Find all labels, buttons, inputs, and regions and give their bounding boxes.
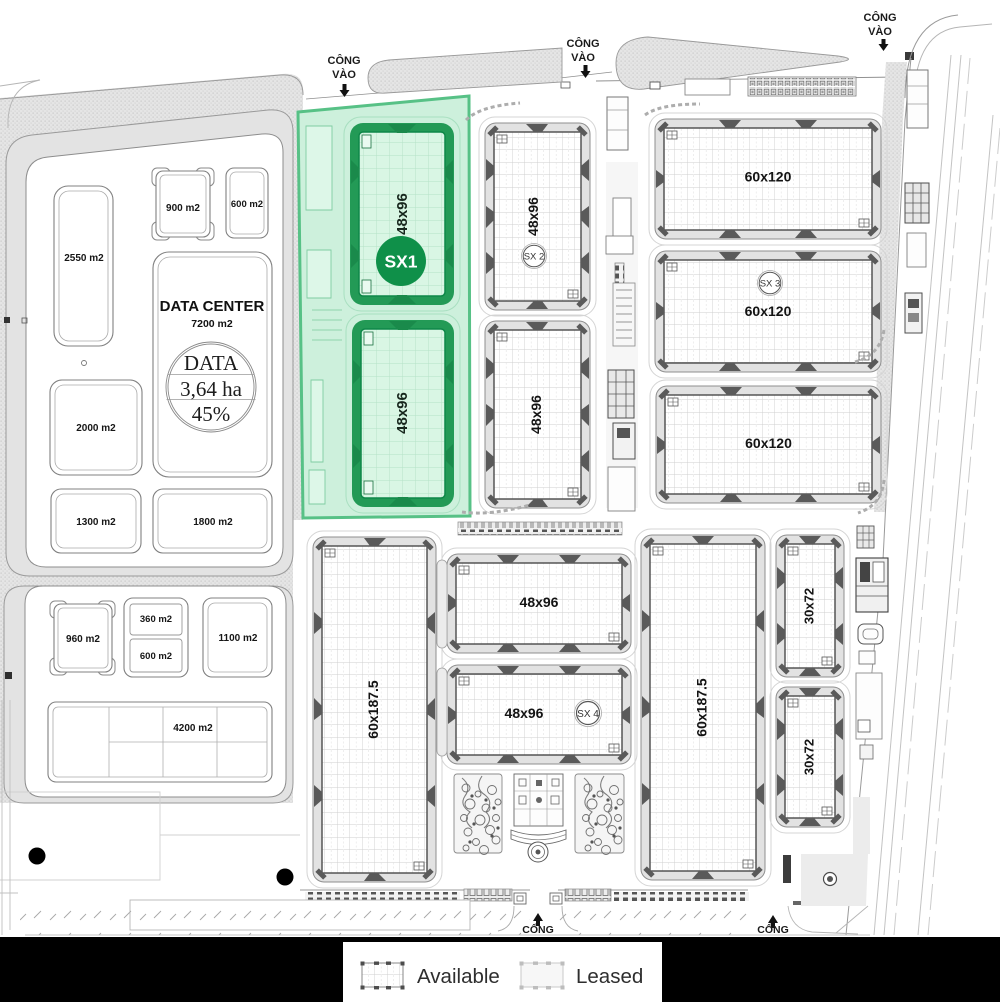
- svg-text:45%: 45%: [192, 402, 231, 426]
- svg-text:SX 4: SX 4: [577, 709, 599, 720]
- svg-text:2550 m2: 2550 m2: [64, 253, 104, 264]
- svg-text:CỔNG: CỔNG: [757, 923, 789, 936]
- svg-text:1100 m2: 1100 m2: [219, 633, 258, 644]
- svg-text:7200 m2: 7200 m2: [191, 318, 233, 330]
- svg-text:48x96: 48x96: [505, 705, 544, 721]
- svg-text:Leased: Leased: [576, 965, 643, 988]
- svg-text:CÔNG: CÔNG: [328, 54, 361, 67]
- svg-text:30x72: 30x72: [801, 739, 816, 775]
- svg-text:CÔNG: CÔNG: [864, 11, 897, 24]
- svg-text:DATA: DATA: [184, 351, 239, 375]
- svg-text:DATA CENTER: DATA CENTER: [160, 298, 265, 315]
- svg-text:2000 m2: 2000 m2: [76, 423, 116, 434]
- svg-text:1300 m2: 1300 m2: [76, 517, 116, 528]
- svg-text:360 m2: 360 m2: [140, 614, 172, 625]
- svg-text:60x120: 60x120: [745, 169, 792, 185]
- svg-text:VÀO: VÀO: [571, 51, 595, 64]
- svg-text:600 m2: 600 m2: [140, 651, 172, 662]
- svg-text:48x96: 48x96: [520, 594, 559, 610]
- svg-text:3,64 ha: 3,64 ha: [180, 377, 243, 401]
- svg-text:30x72: 30x72: [801, 588, 816, 624]
- svg-text:1800 m2: 1800 m2: [193, 517, 233, 528]
- svg-text:VÀO: VÀO: [332, 68, 356, 81]
- svg-text:60x187.5: 60x187.5: [365, 680, 381, 739]
- svg-text:60x187.5: 60x187.5: [694, 678, 710, 737]
- svg-text:VÀO: VÀO: [868, 25, 892, 38]
- svg-text:900 m2: 900 m2: [166, 203, 200, 214]
- svg-text:60x120: 60x120: [745, 435, 792, 451]
- svg-text:Available: Available: [417, 965, 500, 988]
- svg-text:CỔNG: CỔNG: [522, 923, 554, 936]
- svg-text:48x96: 48x96: [394, 193, 411, 235]
- svg-text:SX 3: SX 3: [760, 279, 781, 290]
- svg-text:960 m2: 960 m2: [66, 634, 100, 645]
- svg-text:48x96: 48x96: [528, 395, 544, 434]
- svg-text:48x96: 48x96: [525, 197, 541, 236]
- svg-text:60x120: 60x120: [745, 303, 792, 319]
- svg-text:SX 2: SX 2: [524, 252, 545, 263]
- svg-text:4200 m2: 4200 m2: [173, 723, 213, 734]
- svg-text:48x96: 48x96: [394, 392, 411, 434]
- svg-text:CÔNG: CÔNG: [567, 37, 600, 50]
- svg-text:SX1: SX1: [384, 252, 417, 272]
- svg-text:600 m2: 600 m2: [231, 199, 263, 210]
